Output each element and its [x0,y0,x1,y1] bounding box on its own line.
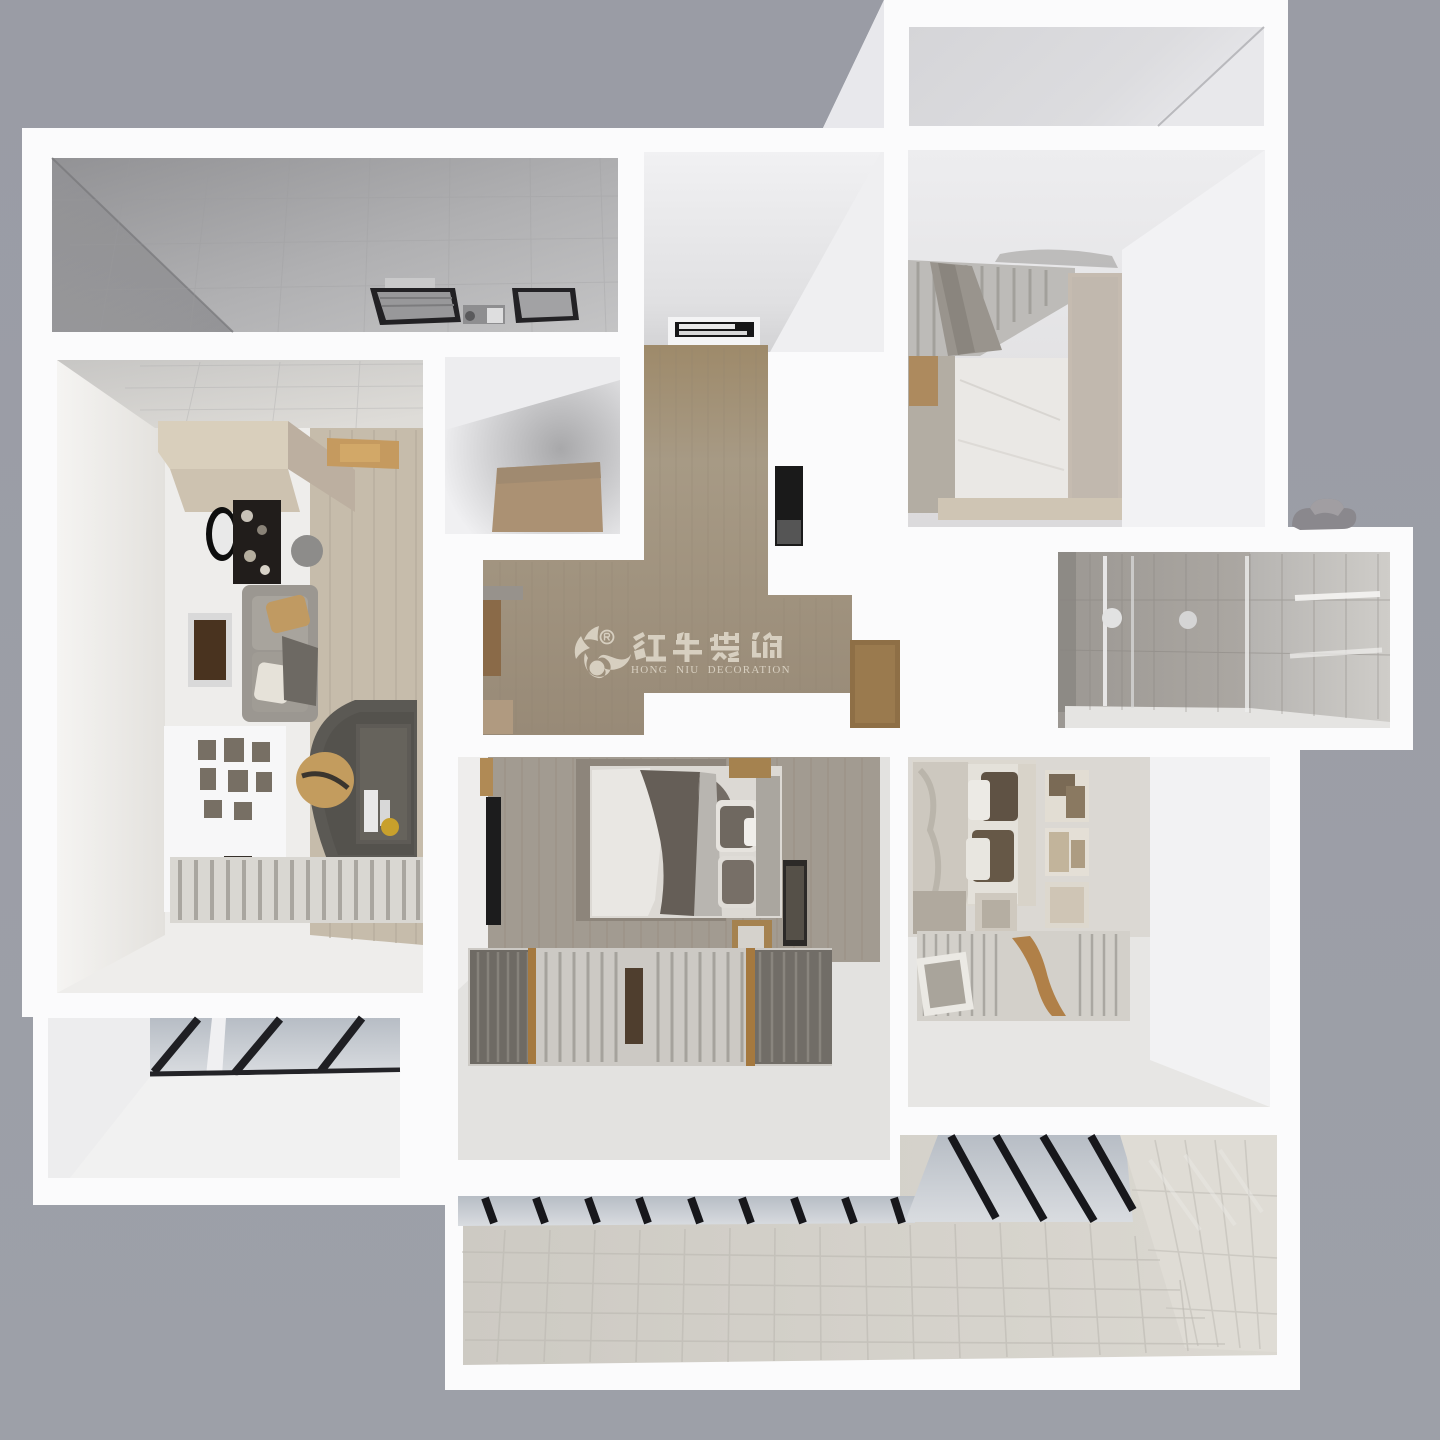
svg-text:HONG NIU DECORATION: HONG NIU DECORATION [631,664,791,676]
